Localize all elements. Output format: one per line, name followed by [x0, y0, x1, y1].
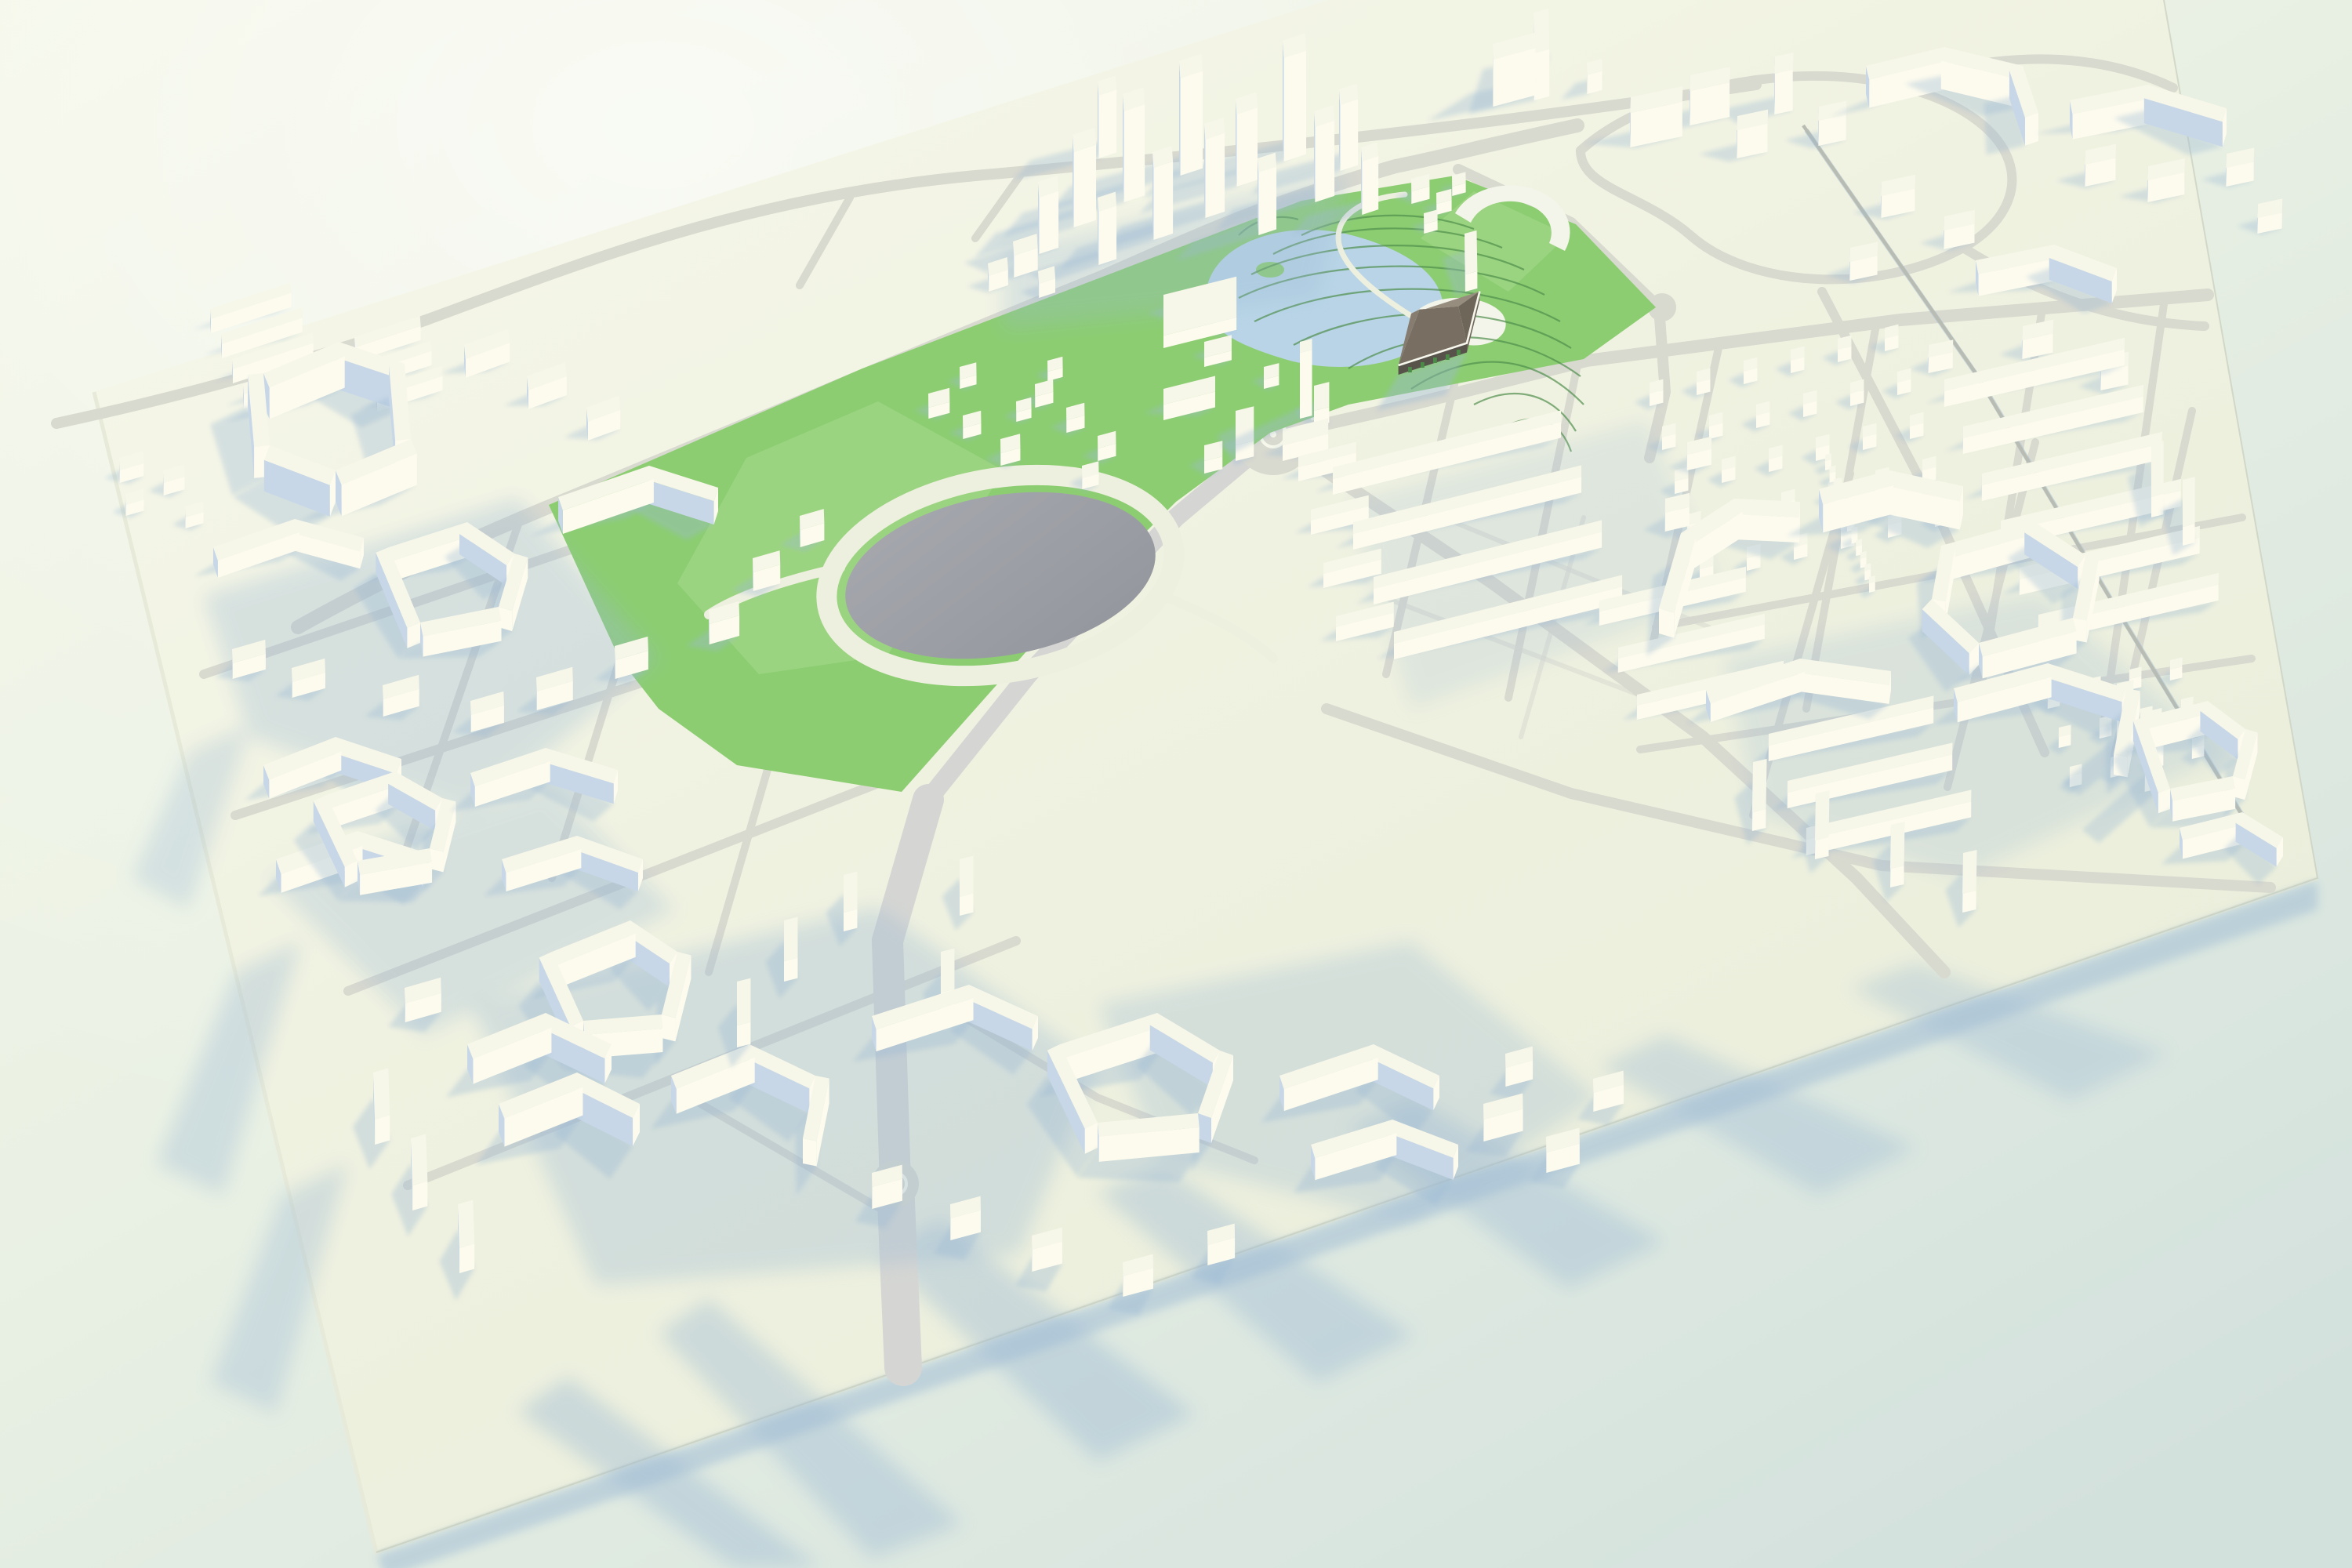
city-model-stage — [0, 0, 2352, 1568]
city-model-render — [0, 0, 2352, 1568]
